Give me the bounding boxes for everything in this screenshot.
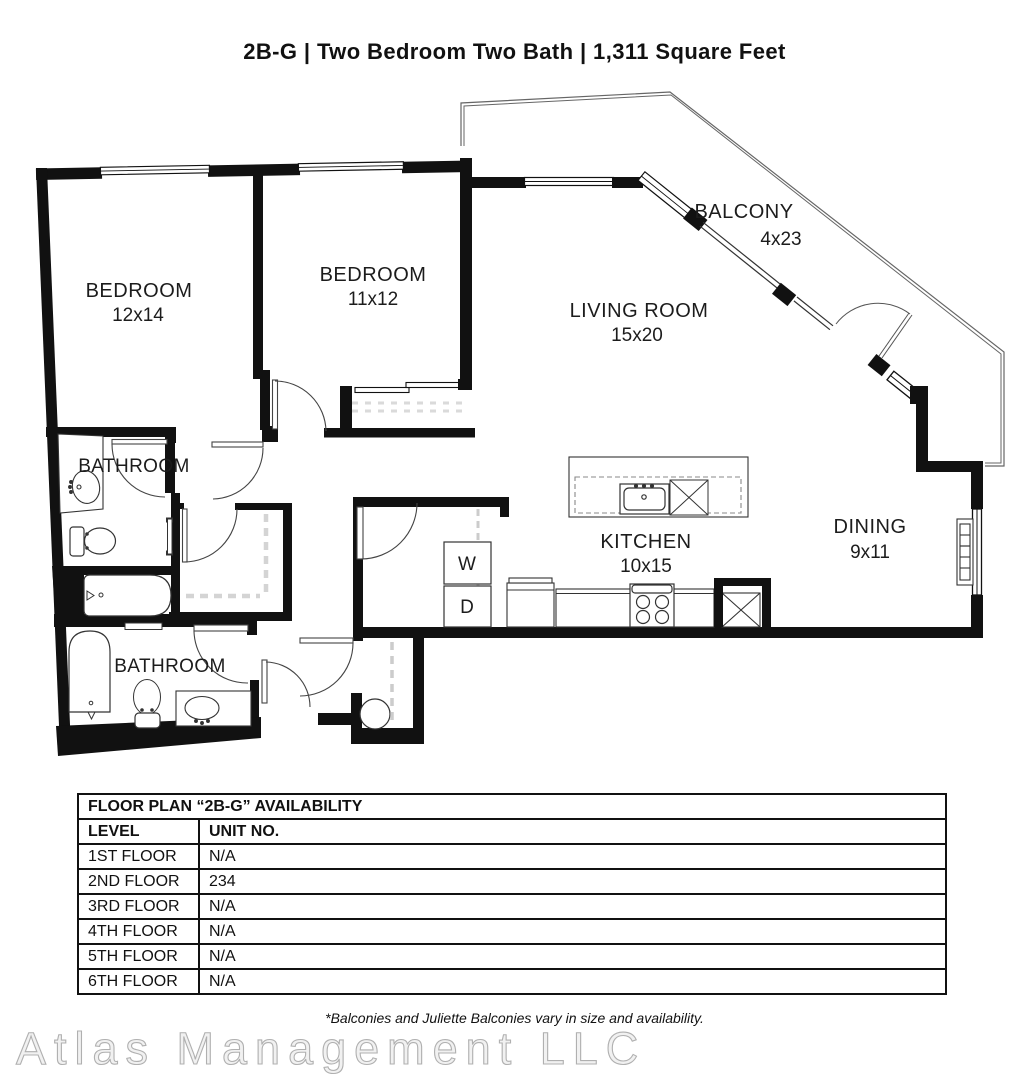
svg-text:9x11: 9x11 bbox=[850, 542, 890, 563]
svg-text:15x20: 15x20 bbox=[611, 325, 663, 346]
svg-text:BEDROOM: BEDROOM bbox=[320, 264, 427, 286]
svg-text:BALCONY: BALCONY bbox=[694, 201, 793, 223]
svg-text:12x14: 12x14 bbox=[112, 305, 164, 326]
svg-text:BEDROOM: BEDROOM bbox=[86, 280, 193, 302]
svg-text:KITCHEN: KITCHEN bbox=[600, 531, 691, 553]
svg-text:BATHROOM: BATHROOM bbox=[78, 456, 190, 477]
svg-text:LIVING ROOM: LIVING ROOM bbox=[570, 300, 709, 322]
svg-text:11x12: 11x12 bbox=[348, 289, 398, 310]
svg-text:D: D bbox=[460, 597, 474, 618]
svg-text:10x15: 10x15 bbox=[620, 556, 672, 577]
svg-text:DINING: DINING bbox=[834, 516, 907, 538]
svg-text:W: W bbox=[458, 554, 476, 575]
svg-text:4x23: 4x23 bbox=[760, 229, 801, 250]
svg-text:BATHROOM: BATHROOM bbox=[114, 656, 226, 677]
